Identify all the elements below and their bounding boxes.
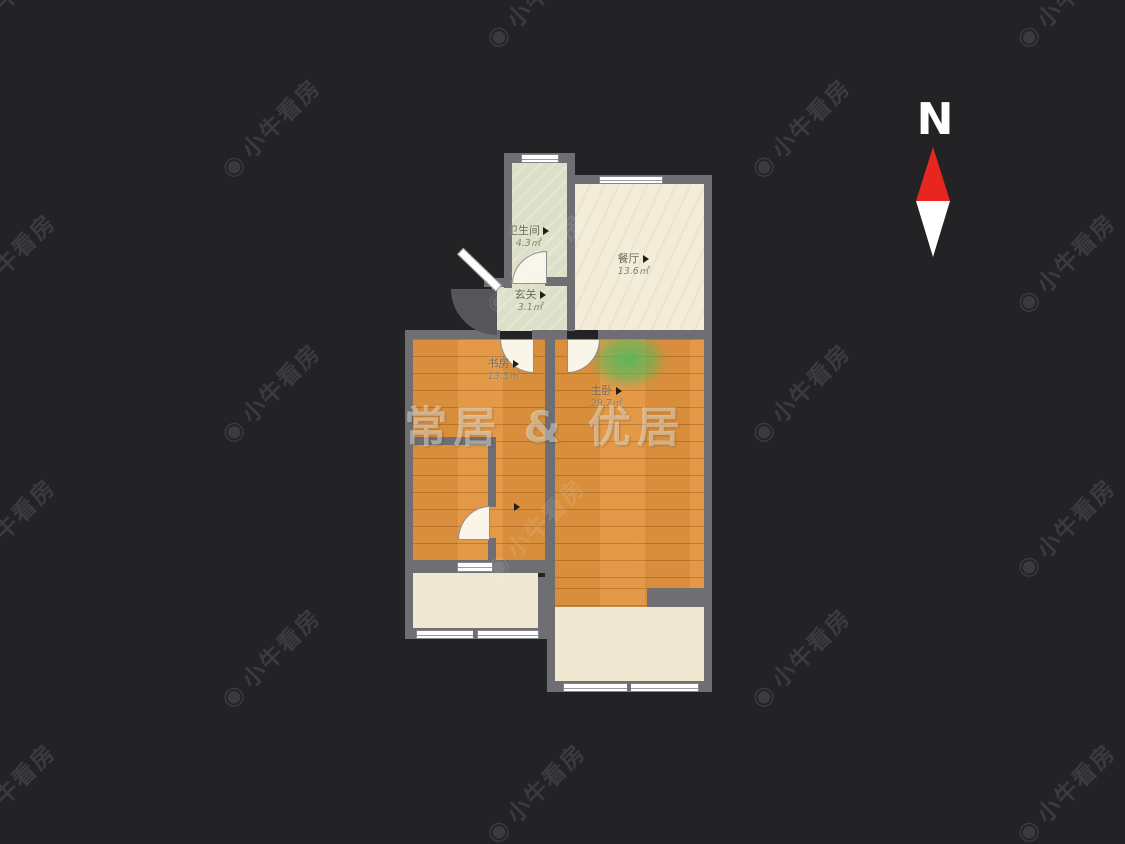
- wall: [405, 330, 413, 639]
- label-arrow-icon: [543, 227, 549, 235]
- watermark-tile: ◉小牛看房: [212, 599, 327, 714]
- camera-icon: ◉: [215, 147, 252, 184]
- watermark-tile: ◉小牛看房: [742, 334, 857, 449]
- compass-north-label: N: [912, 94, 958, 145]
- room-area: 13.6㎡: [601, 266, 665, 278]
- watermark-tile: ◉小牛看房: [212, 334, 327, 449]
- window-mullion: [627, 683, 631, 691]
- room-area: 4.3㎡: [495, 238, 561, 250]
- right-balcony-floor: [555, 607, 704, 681]
- room-name: 主卧: [591, 384, 613, 397]
- label-arrow-icon: [513, 360, 519, 368]
- wall: [405, 437, 496, 445]
- watermark-tile: ◉小牛看房: [742, 69, 857, 184]
- room-name: 玄关: [515, 288, 537, 301]
- camera-icon: ◉: [1010, 812, 1047, 844]
- window: [416, 630, 475, 639]
- room-name: 餐厅: [618, 252, 640, 265]
- window: [563, 683, 699, 692]
- entry-door-swing: [451, 289, 497, 335]
- entry-door-leaf: [457, 248, 502, 292]
- camera-icon: ◉: [1010, 17, 1047, 54]
- window: [477, 630, 539, 639]
- wall: [704, 175, 712, 692]
- balcony-threshold-line: [557, 605, 645, 607]
- watermark-tile: ◉小牛看房: [1007, 469, 1122, 584]
- wall: [538, 577, 555, 639]
- label-arrow-icon: [643, 255, 649, 263]
- watermark-tile: ◉小牛看房: [1007, 734, 1122, 844]
- wall: [547, 639, 555, 692]
- window: [521, 154, 559, 163]
- watermark-tile: ◉小牛看房: [0, 204, 62, 319]
- compass-needle-north-icon: [916, 147, 950, 201]
- room-label-foyer: 玄关 3.1㎡: [499, 288, 561, 314]
- watermark-tile: ◉小牛看房: [477, 734, 592, 844]
- room-area: 29.7㎡: [574, 398, 638, 410]
- watermark-tile: ◉小牛看房: [1007, 204, 1122, 319]
- label-arrow-icon: [540, 291, 546, 299]
- camera-icon: ◉: [1010, 282, 1047, 319]
- wall: [488, 437, 496, 507]
- room-label-dining: 餐厅 13.6㎡: [601, 252, 665, 278]
- left-balcony-floor: [413, 573, 538, 628]
- camera-icon: ◉: [215, 677, 252, 714]
- window: [599, 176, 663, 184]
- wall: [532, 330, 545, 339]
- camera-icon: ◉: [215, 412, 252, 449]
- wall: [598, 330, 704, 339]
- wall: [545, 330, 555, 577]
- watermark-tile: ◉小牛看房: [742, 599, 857, 714]
- compass-needle-south-icon: [916, 201, 950, 257]
- room-label-bathroom: 卫生间 4.3㎡: [495, 224, 561, 250]
- window: [457, 562, 493, 572]
- floorplan-screenshot: 卫生间 4.3㎡ 餐厅 13.6㎡ 玄关 3.1㎡ 书房 13.5㎡ 主卧 29…: [0, 0, 1125, 844]
- camera-icon: ◉: [745, 147, 782, 184]
- room-label-master: 主卧 29.7㎡: [574, 384, 638, 410]
- watermark-tile: ◉小牛看房: [1007, 0, 1122, 55]
- wall: [504, 153, 512, 288]
- label-arrow-icon: [514, 503, 520, 511]
- label-arrow-icon: [616, 387, 622, 395]
- room-name: 书房: [488, 357, 510, 370]
- room-area: 3.1㎡: [499, 302, 561, 314]
- watermark-tile: ◉小牛看房: [0, 469, 62, 584]
- watermark-tile: ◉小牛看房: [212, 69, 327, 184]
- camera-icon: ◉: [1010, 547, 1047, 584]
- wall: [545, 277, 567, 286]
- window-mullion: [473, 630, 477, 638]
- wall: [647, 588, 704, 607]
- watermark-tile: ◉小牛看房: [477, 0, 592, 55]
- room-label-study: 书房 13.5㎡: [471, 357, 535, 383]
- room-name: 卫生间: [507, 224, 540, 237]
- camera-icon: ◉: [745, 677, 782, 714]
- watermark-tile: ◉小牛看房: [0, 734, 62, 844]
- camera-icon: ◉: [745, 412, 782, 449]
- watermark-tile: ◉小牛看房: [0, 0, 62, 55]
- camera-icon: ◉: [480, 17, 517, 54]
- room-area: 13.5㎡: [471, 371, 535, 383]
- camera-icon: ◉: [480, 812, 517, 844]
